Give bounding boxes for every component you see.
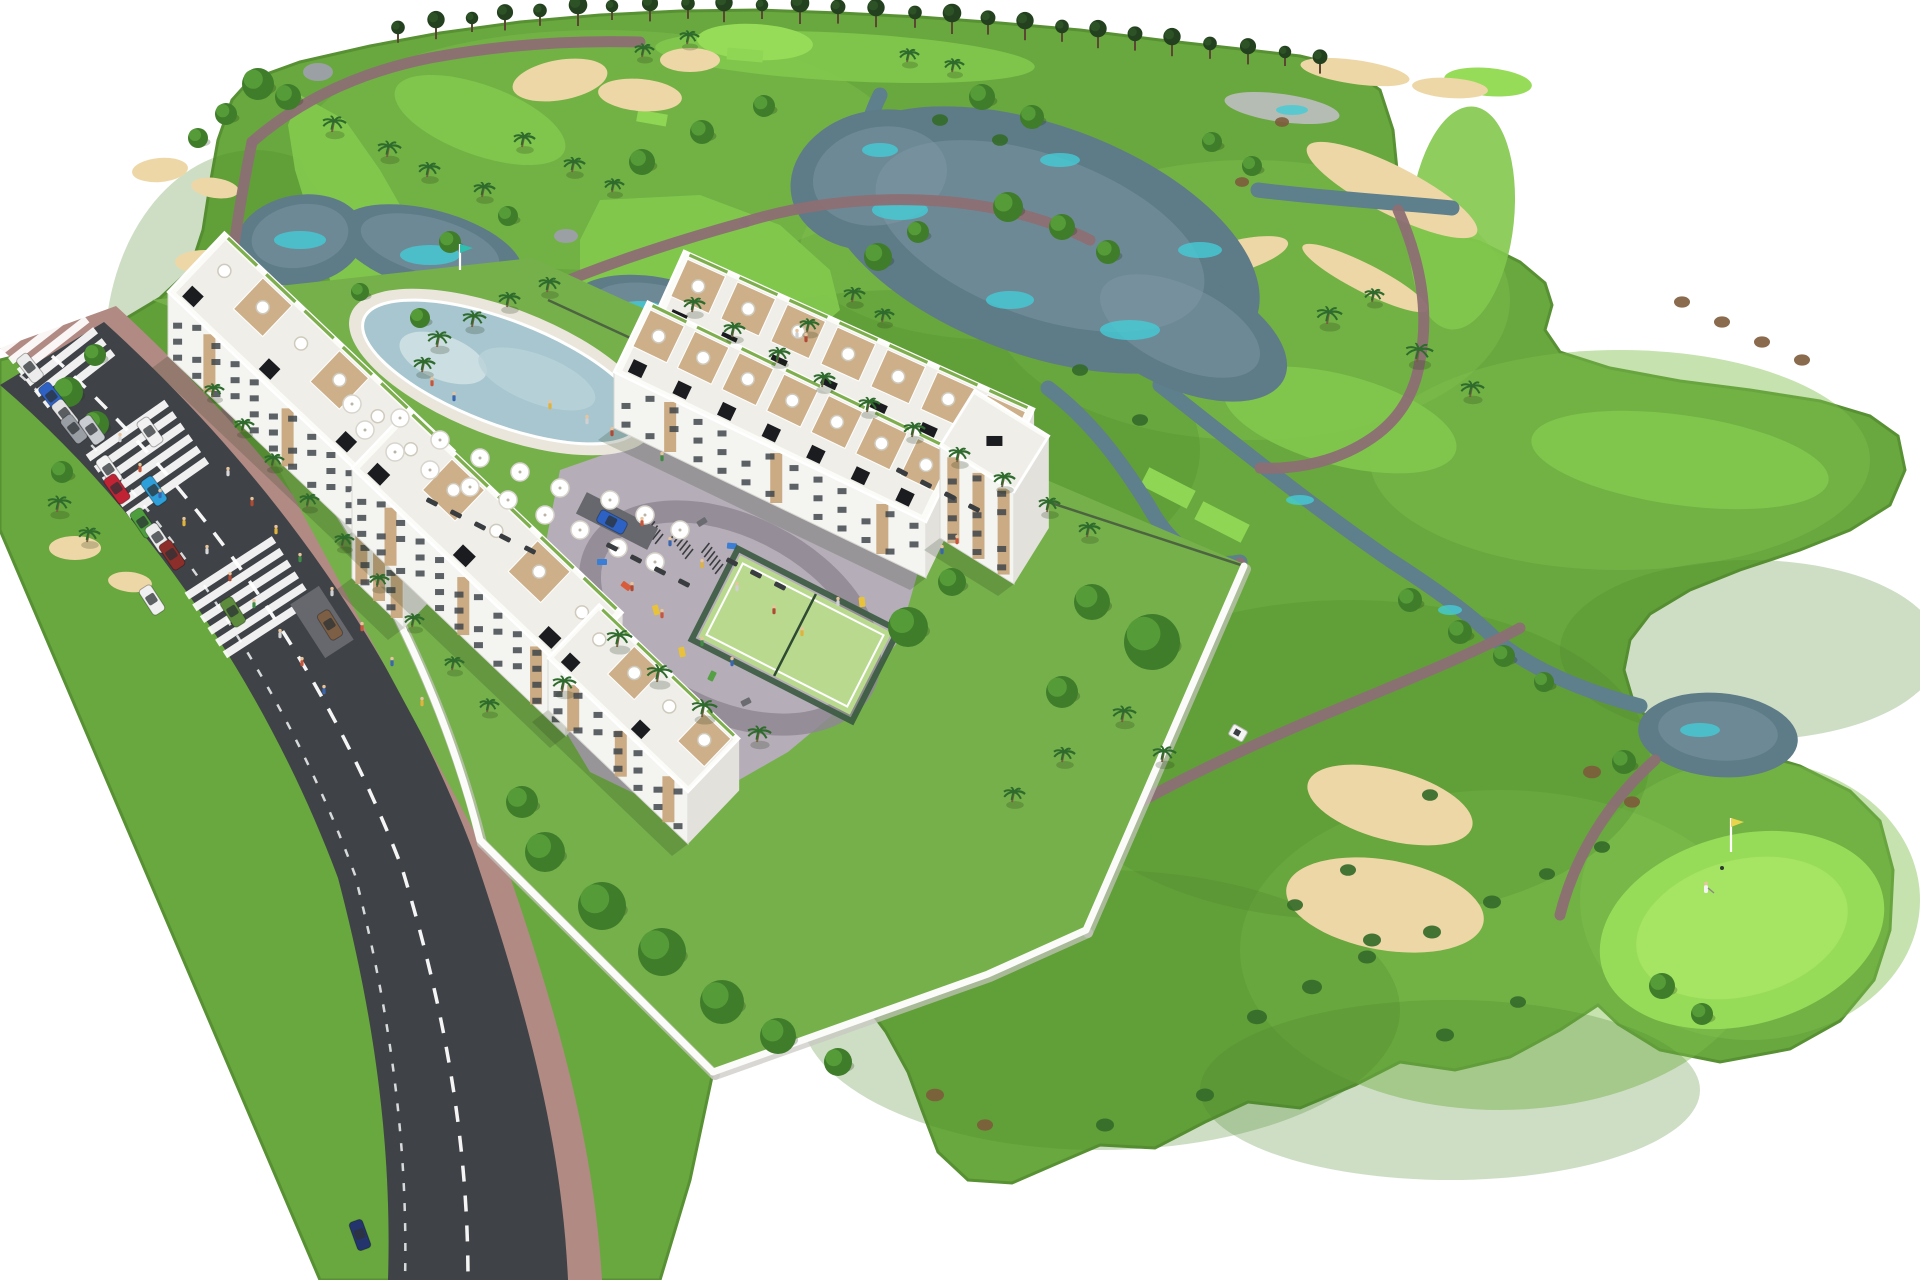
- person-head: [660, 609, 663, 612]
- window: [790, 484, 799, 490]
- window: [288, 448, 297, 454]
- skyline-tree-light: [1164, 30, 1174, 40]
- roof-umbrella: [333, 373, 346, 386]
- green-shrub: [1072, 364, 1088, 376]
- palm-shadow: [726, 336, 744, 344]
- skyline-tree-light: [1056, 21, 1064, 29]
- tree-highlight: [52, 462, 65, 475]
- roof-umbrella: [404, 443, 417, 456]
- roof-umbrella: [742, 302, 755, 315]
- person: [548, 403, 551, 409]
- window: [192, 357, 201, 363]
- playground-equipment: [597, 559, 607, 565]
- palm-shadow: [1081, 536, 1099, 544]
- green-shrub: [992, 134, 1008, 146]
- brown-shrub: [1235, 177, 1249, 187]
- tree-highlight: [276, 85, 292, 101]
- window: [532, 650, 541, 656]
- palm-shadow: [302, 507, 318, 514]
- window: [554, 708, 563, 714]
- person-head: [118, 433, 121, 436]
- roof-umbrella: [875, 437, 888, 450]
- parasol-tip: [644, 514, 647, 517]
- tree-highlight: [508, 788, 527, 807]
- window: [838, 488, 847, 494]
- person-head: [836, 597, 839, 600]
- skyline-tree-light: [981, 12, 989, 20]
- window: [614, 766, 623, 772]
- person: [390, 660, 393, 666]
- window: [654, 787, 663, 793]
- skyline-tree-light: [1241, 40, 1250, 49]
- green-shrub: [1436, 1029, 1454, 1042]
- tree-highlight: [1535, 673, 1547, 685]
- shallow-water-patch: [986, 291, 1034, 309]
- window: [574, 693, 583, 699]
- skyline-tree-light: [1090, 22, 1100, 32]
- palm-shadow: [482, 712, 498, 719]
- window: [674, 823, 683, 829]
- person: [274, 528, 277, 534]
- window: [173, 339, 182, 345]
- rock: [554, 229, 578, 243]
- window: [435, 573, 444, 579]
- window: [973, 512, 982, 518]
- palm-shadow: [325, 131, 344, 139]
- person-head: [955, 535, 958, 538]
- person-head: [800, 627, 803, 630]
- window: [973, 549, 982, 555]
- window: [948, 479, 957, 485]
- green-shrub: [1358, 951, 1376, 964]
- palm-shadow: [447, 670, 463, 677]
- roof-umbrella: [920, 458, 933, 471]
- person-head: [940, 545, 943, 548]
- person: [640, 520, 643, 526]
- person: [772, 608, 775, 614]
- tree-highlight: [1449, 621, 1463, 635]
- tree-highlight: [1243, 157, 1255, 169]
- window: [997, 564, 1006, 570]
- parasol-tip: [654, 561, 657, 564]
- window: [910, 523, 919, 529]
- window: [173, 323, 182, 329]
- person: [735, 585, 738, 591]
- parasol-tip: [439, 439, 442, 442]
- window: [973, 531, 982, 537]
- facade-accent: [662, 776, 674, 822]
- parasol-tip: [609, 499, 612, 502]
- green-shrub: [1423, 926, 1441, 939]
- green-shrub: [1287, 899, 1303, 911]
- person: [420, 700, 423, 706]
- window: [231, 361, 240, 367]
- person: [795, 332, 798, 338]
- person: [118, 436, 121, 442]
- palm-shadow: [1006, 801, 1024, 809]
- tree-highlight: [499, 207, 511, 219]
- window: [694, 438, 703, 444]
- window: [646, 396, 655, 402]
- tree-highlight: [754, 96, 767, 109]
- person-head: [640, 517, 643, 520]
- person: [660, 612, 663, 618]
- person-head: [252, 599, 255, 602]
- green-shrub: [1594, 841, 1610, 853]
- roof-umbrella: [628, 666, 641, 679]
- window: [307, 482, 316, 488]
- person-head: [660, 452, 663, 455]
- palm-shadow: [686, 311, 704, 319]
- tree-highlight: [1076, 586, 1098, 608]
- window: [326, 452, 335, 458]
- palm-shadow: [902, 62, 918, 69]
- window: [231, 377, 240, 383]
- window: [814, 495, 823, 501]
- tree-highlight: [244, 70, 263, 89]
- palm-shadow: [1056, 761, 1074, 769]
- person-head: [730, 657, 733, 660]
- person-head: [452, 392, 455, 395]
- tree-highlight: [1021, 106, 1035, 120]
- palm-shadow: [1115, 721, 1134, 729]
- palm-shadow: [846, 301, 864, 309]
- shallow-water-patch: [274, 231, 326, 249]
- tree-highlight: [1050, 215, 1066, 231]
- tree-highlight: [352, 284, 363, 295]
- person: [158, 492, 161, 498]
- window: [435, 605, 444, 611]
- window: [574, 727, 583, 733]
- person: [800, 630, 803, 636]
- window: [173, 355, 182, 361]
- roof-umbrella: [892, 370, 905, 383]
- green-shrub: [1132, 414, 1148, 426]
- palm-shadow: [372, 587, 388, 594]
- person-head: [700, 637, 703, 640]
- tree-highlight: [1399, 589, 1413, 603]
- brown-shrub: [1674, 296, 1690, 307]
- window: [790, 465, 799, 471]
- window: [886, 511, 895, 517]
- person-head: [668, 537, 671, 540]
- palm-shadow: [877, 322, 893, 329]
- shallow-water-patch: [1286, 495, 1314, 505]
- golfer-head: [1704, 882, 1708, 886]
- window: [377, 533, 386, 539]
- window: [622, 403, 631, 409]
- window: [718, 430, 727, 436]
- person-head: [182, 517, 185, 520]
- tree-highlight: [440, 232, 453, 245]
- golfer: [1704, 885, 1708, 893]
- palm-shadow: [695, 715, 716, 724]
- window: [416, 571, 425, 577]
- parasol-tip: [544, 514, 547, 517]
- palm-shadow: [996, 486, 1014, 494]
- person: [730, 660, 733, 666]
- roof-umbrella: [830, 416, 843, 429]
- window: [654, 804, 663, 810]
- parasol-tip: [364, 429, 367, 432]
- person: [330, 590, 333, 596]
- window: [670, 407, 679, 413]
- brown-shrub: [926, 1089, 944, 1102]
- skyline-tree-light: [831, 1, 839, 9]
- person: [322, 688, 325, 694]
- parasol-tip: [579, 529, 582, 532]
- window: [387, 604, 396, 610]
- tree-highlight: [702, 982, 728, 1008]
- person-head: [228, 572, 231, 575]
- tree-highlight: [580, 884, 609, 913]
- roof-umbrella: [447, 484, 460, 497]
- window: [474, 626, 483, 632]
- palm-shadow: [607, 192, 623, 199]
- person: [668, 540, 671, 546]
- person-head: [158, 489, 161, 492]
- person-head: [138, 463, 141, 466]
- window: [910, 541, 919, 547]
- person: [226, 470, 229, 476]
- window: [814, 477, 823, 483]
- roof-umbrella: [533, 565, 546, 578]
- brown-shrub: [1583, 766, 1601, 779]
- skyline-tree-light: [534, 5, 542, 13]
- person-head: [205, 545, 208, 548]
- sand-bunker: [660, 48, 720, 72]
- roof-umbrella: [692, 280, 705, 293]
- brown-shrub: [1754, 336, 1770, 347]
- tree-highlight: [527, 834, 551, 858]
- window: [250, 427, 259, 433]
- person-head: [430, 377, 433, 380]
- green-shrub: [1510, 996, 1526, 1008]
- person-head: [585, 415, 588, 418]
- person-head: [804, 333, 807, 336]
- skyline-tree-light: [1128, 28, 1136, 36]
- person: [836, 600, 839, 606]
- green-shrub: [1422, 789, 1438, 801]
- palm-shadow: [682, 44, 698, 51]
- person-head: [548, 400, 551, 403]
- window: [742, 461, 751, 467]
- palm-shadow: [816, 386, 834, 394]
- window: [326, 484, 335, 490]
- window: [886, 549, 895, 555]
- person-head: [278, 629, 281, 632]
- tree-highlight: [890, 609, 914, 633]
- parasol-tip: [399, 417, 402, 420]
- tree-highlight: [995, 194, 1013, 212]
- person: [278, 632, 281, 638]
- tree-highlight: [1692, 1004, 1705, 1017]
- roof-umbrella: [218, 264, 231, 277]
- palm-shadow: [566, 171, 584, 179]
- window: [396, 536, 405, 542]
- parasol-tip: [507, 499, 510, 502]
- palm-shadow: [947, 72, 963, 79]
- person-head: [322, 685, 325, 688]
- palm-shadow: [421, 176, 439, 184]
- skyline-tree-light: [868, 1, 878, 11]
- window: [594, 712, 603, 718]
- person: [700, 562, 703, 568]
- palm-shadow: [637, 57, 653, 64]
- window: [838, 525, 847, 531]
- skyline-tree-light: [1204, 38, 1212, 46]
- brown-shrub: [1275, 117, 1289, 127]
- roof-umbrella: [295, 337, 308, 350]
- shallow-water-patch: [1178, 242, 1222, 258]
- parasol-tip: [351, 403, 354, 406]
- person-head: [772, 605, 775, 608]
- tree-highlight: [908, 222, 921, 235]
- roof-umbrella: [256, 301, 269, 314]
- window: [361, 579, 370, 585]
- window: [718, 449, 727, 455]
- tree-highlight: [691, 121, 705, 135]
- window: [634, 750, 643, 756]
- person: [298, 556, 301, 562]
- window: [948, 515, 957, 521]
- roof-umbrella: [371, 410, 384, 423]
- parasol-tip: [679, 529, 682, 532]
- window: [532, 682, 541, 688]
- palm-shadow: [610, 645, 631, 654]
- skyline-tree-light: [1280, 47, 1287, 54]
- brown-shrub: [1624, 796, 1640, 807]
- window: [493, 661, 502, 667]
- person: [430, 380, 433, 386]
- green-shrub: [1340, 864, 1356, 876]
- facade-accent: [385, 508, 397, 566]
- skyline-tree-light: [1017, 14, 1027, 24]
- window: [670, 426, 679, 432]
- window: [474, 642, 483, 648]
- window: [307, 434, 316, 440]
- person-head: [700, 559, 703, 562]
- palm-shadow: [380, 156, 399, 164]
- person-head: [226, 467, 229, 470]
- window: [357, 499, 366, 505]
- skyline-tree-light: [607, 1, 614, 8]
- roof-umbrella: [786, 394, 799, 407]
- person-head: [420, 697, 423, 700]
- window: [614, 731, 623, 737]
- roof-umbrella: [942, 393, 955, 406]
- shallow-water-patch: [1040, 153, 1080, 167]
- window: [288, 416, 297, 422]
- person: [182, 520, 185, 526]
- window: [634, 768, 643, 774]
- brown-shrub: [1714, 316, 1730, 327]
- person: [205, 548, 208, 554]
- palm-shadow: [1463, 396, 1482, 404]
- person-head: [795, 329, 798, 332]
- window: [862, 518, 871, 524]
- green-shrub: [1196, 1089, 1214, 1102]
- tree-highlight: [630, 150, 646, 166]
- window: [269, 446, 278, 452]
- window: [594, 729, 603, 735]
- tree-highlight: [411, 309, 423, 321]
- green-shrub: [1363, 934, 1381, 947]
- tree-highlight: [1097, 241, 1111, 255]
- roof-umbrella: [697, 351, 710, 364]
- parasol-tip: [479, 457, 482, 460]
- palm-shadow: [267, 467, 283, 474]
- palm-shadow: [951, 461, 969, 469]
- tree-highlight: [1048, 678, 1067, 697]
- person: [452, 395, 455, 401]
- window: [396, 520, 405, 526]
- person-head: [300, 657, 303, 660]
- palm-shadow: [1409, 360, 1431, 370]
- window: [622, 422, 631, 428]
- roof-umbrella: [842, 348, 855, 361]
- skyline-tree-light: [498, 6, 507, 15]
- window: [838, 507, 847, 513]
- person: [660, 455, 663, 461]
- skyline-tree-light: [944, 6, 955, 17]
- palm-shadow: [1155, 761, 1174, 769]
- window: [513, 647, 522, 653]
- person-head: [274, 525, 277, 528]
- skyline-tree-light: [392, 22, 400, 30]
- window: [435, 589, 444, 595]
- tree-highlight: [189, 129, 201, 141]
- tree-highlight: [1127, 617, 1161, 651]
- tree-highlight: [1650, 974, 1666, 990]
- person: [940, 548, 943, 554]
- window: [455, 592, 464, 598]
- parasol-tip: [394, 451, 397, 454]
- window: [674, 788, 683, 794]
- window: [532, 698, 541, 704]
- window: [455, 608, 464, 614]
- window: [455, 624, 464, 630]
- palm-shadow: [337, 547, 353, 554]
- window: [211, 359, 220, 365]
- window: [377, 549, 386, 555]
- window: [192, 373, 201, 379]
- roof-umbrella: [741, 373, 754, 386]
- window: [396, 568, 405, 574]
- green-shrub: [932, 114, 948, 126]
- window: [718, 468, 727, 474]
- palm-shadow: [50, 511, 69, 519]
- window: [862, 537, 871, 543]
- tree-highlight: [216, 104, 229, 117]
- palm-shadow: [771, 361, 789, 369]
- window: [742, 479, 751, 485]
- palm-shadow: [1320, 322, 1341, 331]
- person-head: [298, 553, 301, 556]
- window: [416, 555, 425, 561]
- shallow-water-patch: [1276, 105, 1308, 115]
- window: [357, 531, 366, 537]
- palm-shadow: [207, 397, 223, 404]
- palm-shadow: [81, 541, 99, 549]
- green-shrub: [1096, 1119, 1114, 1132]
- skyline-tree-light: [467, 13, 474, 20]
- palm-shadow: [750, 741, 769, 749]
- window: [973, 475, 982, 481]
- person: [804, 336, 807, 342]
- architectural-render-page: [0, 0, 1920, 1280]
- window: [513, 663, 522, 669]
